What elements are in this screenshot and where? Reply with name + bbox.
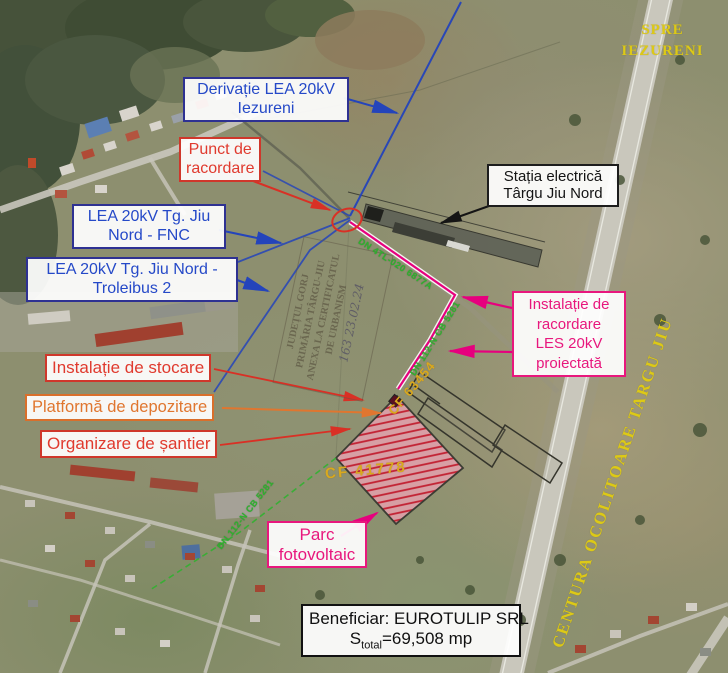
callout-line: fotovoltaic	[274, 545, 360, 565]
callout-line: racordare	[519, 315, 619, 335]
callout-line: Stația electrică	[494, 168, 612, 185]
arrow-derivatie	[344, 98, 397, 113]
building	[150, 478, 199, 493]
building	[160, 640, 170, 647]
building	[575, 645, 586, 653]
callout-line: Punct de	[186, 141, 254, 160]
building	[125, 575, 135, 582]
lea-line-west	[263, 171, 350, 216]
callout-line: Troleibus 2	[33, 280, 231, 299]
callout-instalatie-stocare: Instalație de stocare	[45, 354, 211, 382]
building	[255, 585, 265, 592]
building	[45, 545, 55, 552]
callout-line: Instalație de	[519, 295, 619, 315]
callout-parc-fotovoltaic: Parc fotovoltaic	[267, 521, 367, 568]
arrow-statia	[441, 206, 489, 223]
building	[185, 553, 195, 560]
spre-line1: SPRE	[600, 20, 725, 41]
building	[103, 140, 117, 151]
area-value: =69,508 mp	[382, 629, 472, 648]
beneficiary-area: Stotal=69,508 mp	[309, 629, 513, 652]
building	[65, 512, 75, 519]
callout-line: Instalație de stocare	[52, 358, 204, 378]
spre-line2: IEZURENI	[600, 41, 725, 62]
building	[250, 615, 260, 622]
building	[222, 566, 232, 573]
callout-lea-troleibus: LEA 20kV Tg. Jiu Nord - Troleibus 2	[26, 257, 238, 302]
building	[115, 628, 125, 635]
building	[610, 630, 621, 638]
callout-line: Platformă de depozitare	[32, 398, 207, 417]
building	[648, 616, 659, 624]
callout-line: LEA 20kV Tg. Jiu Nord -	[33, 261, 231, 280]
arrow-les-2	[450, 351, 512, 352]
arrow-depozitare	[222, 408, 381, 413]
road-label-spre-iezureni: SPRE IEZURENI	[600, 20, 725, 62]
callout-punct-racordare: Punct de racordare	[179, 137, 261, 182]
beneficiary-name: Beneficiar: EUROTULIP SRL	[309, 609, 513, 629]
arrow-troleibus	[237, 280, 268, 291]
building	[25, 500, 35, 507]
callout-organizare-santier: Organizare de șantier	[40, 430, 217, 458]
building	[70, 615, 80, 622]
callout-line: Derivație LEA 20kV	[190, 81, 342, 100]
building	[686, 603, 697, 611]
building	[28, 158, 36, 168]
callout-line: proiectată	[519, 354, 619, 374]
building	[145, 541, 155, 548]
callout-line: LEA 20kV Tg. Jiu	[79, 208, 219, 227]
building	[70, 465, 136, 482]
arrow-santier	[220, 429, 350, 445]
callout-lea-fnc: LEA 20kV Tg. Jiu Nord - FNC	[72, 204, 226, 249]
callout-line: LES 20kV	[519, 334, 619, 354]
building	[105, 527, 115, 534]
building	[700, 648, 711, 656]
building	[149, 120, 163, 131]
area-subscript: total	[361, 639, 382, 651]
building	[85, 560, 95, 567]
callout-derivatie-lea: Derivație LEA 20kV Iezureni	[183, 77, 349, 122]
building	[95, 185, 107, 193]
callout-platforma-depozitare: Platformă de depozitare	[25, 394, 214, 421]
callout-statia-electrica: Stația electrică Târgu Jiu Nord	[487, 164, 619, 207]
building	[125, 130, 140, 142]
callout-line: racordare	[186, 160, 254, 179]
callout-line: Târgu Jiu Nord	[494, 185, 612, 202]
area-symbol: S	[350, 629, 361, 648]
building	[81, 148, 95, 159]
arrow-fnc	[219, 230, 281, 243]
callout-line: Iezureni	[190, 100, 342, 119]
callout-line: Organizare de șantier	[47, 434, 210, 454]
callout-instalatie-racordare: Instalație de racordare LES 20kV proiect…	[512, 291, 626, 377]
building	[55, 190, 67, 198]
building	[28, 600, 38, 607]
callout-line: Parc	[274, 525, 360, 545]
callout-line: Nord - FNC	[79, 227, 219, 246]
beneficiary-box: Beneficiar: EUROTULIP SRL Stotal=69,508 …	[301, 604, 521, 657]
site-plan-map: JUDEȚUL GORJ PRIMĂRIA TÂRGU-JIU ANEXA LA…	[0, 0, 728, 673]
